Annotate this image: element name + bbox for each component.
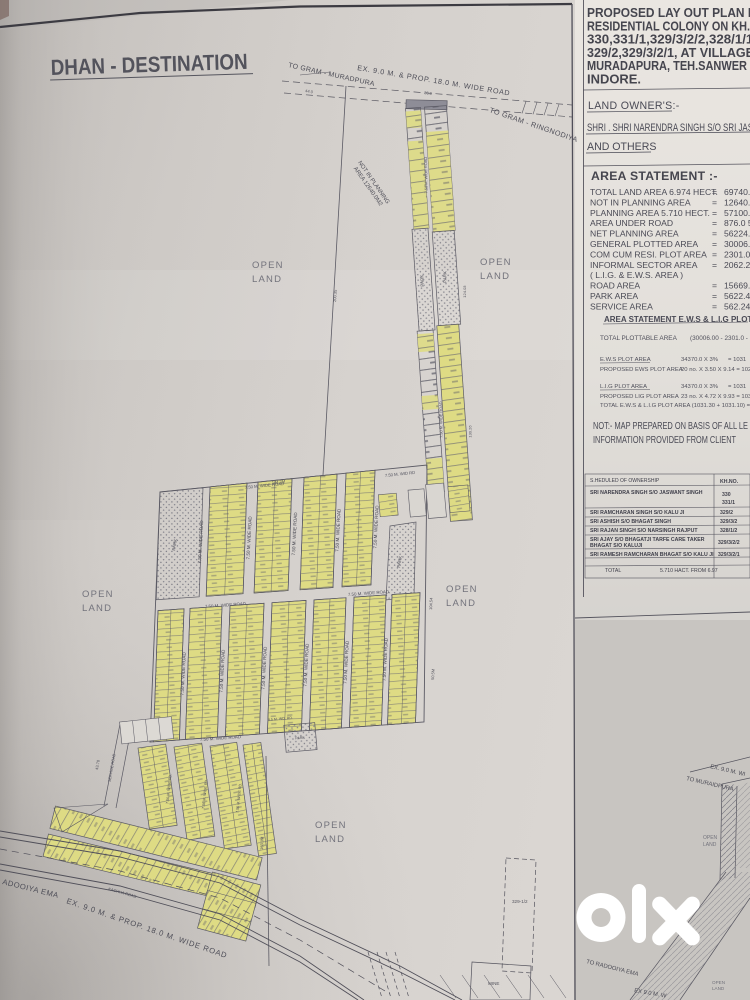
svg-text:=: = xyxy=(712,260,717,270)
svg-text:=: = xyxy=(712,187,717,197)
svg-text:S.HEDULED OF OWNERSHIP: S.HEDULED OF OWNERSHIP xyxy=(590,478,660,484)
svg-text:=: = xyxy=(712,249,717,259)
svg-text:57100.: 57100. xyxy=(724,208,750,218)
svg-text:34370.0 X 3%: 34370.0 X 3% xyxy=(681,357,719,363)
svg-text:NOT IN PLANNING AREA: NOT IN PLANNING AREA xyxy=(590,197,691,207)
svg-text:PARK AREA: PARK AREA xyxy=(590,291,638,301)
svg-text:329-1/2: 329-1/2 xyxy=(512,899,528,904)
svg-text:TOTAL PLOTTABLE AREA: TOTAL PLOTTABLE AREA xyxy=(600,335,678,342)
svg-text:L.I.G PLOT AREA: L.I.G PLOT AREA xyxy=(600,384,647,390)
svg-text:INDORE.: INDORE. xyxy=(587,72,641,87)
svg-text:(30006.00 - 2301.0 - 2062.20 ): (30006.00 - 2301.0 - 2062.20 ) = 143 xyxy=(690,335,750,342)
svg-text:329/3/2/1: 329/3/2/1 xyxy=(718,552,740,558)
svg-text:=: = xyxy=(712,197,717,207)
svg-text:TOTAL LAND AREA 6.974 HECT.: TOTAL LAND AREA 6.974 HECT. xyxy=(590,187,718,197)
svg-text:=: = xyxy=(712,291,717,301)
svg-text:328/1/2: 328/1/2 xyxy=(720,528,737,534)
svg-text:562.24: 562.24 xyxy=(724,301,750,311)
svg-text:INFORMAL SECTOR AREA: INFORMAL SECTOR AREA xyxy=(590,260,698,270)
svg-text:PLANNING AREA 5.710 HECT.: PLANNING AREA 5.710 HECT. xyxy=(590,208,710,218)
svg-text:=: = xyxy=(712,281,717,291)
svg-text:PROPOSED LIG PLOT AREA: PROPOSED LIG PLOT AREA xyxy=(600,394,679,400)
svg-text:TOTAL: TOTAL xyxy=(605,568,621,574)
svg-text:SRI RAMCHARAN SINGH S/O KALU J: SRI RAMCHARAN SINGH S/O KALU JI xyxy=(590,510,685,516)
svg-text:7.50 M. WIDE ROAD: 7.50 M. WIDE ROAD xyxy=(423,157,429,194)
svg-text:5622.4: 5622.4 xyxy=(724,291,750,301)
svg-text:2301.0: 2301.0 xyxy=(724,249,750,259)
svg-text:LAND: LAND xyxy=(252,274,282,285)
svg-text:SERVICE AREA: SERVICE AREA xyxy=(590,301,653,311)
svg-text:OPEN: OPEN xyxy=(712,980,725,985)
svg-text:15669.: 15669. xyxy=(724,281,750,291)
svg-text:2062.2: 2062.2 xyxy=(724,260,750,270)
svg-text:TOTAL E.W.S & L.I.G PLOT AREA: TOTAL E.W.S & L.I.G PLOT AREA (1031.30 +… xyxy=(600,403,750,409)
svg-text:12640.: 12640. xyxy=(724,197,750,207)
svg-text:LAND: LAND xyxy=(446,598,476,609)
svg-text:23 no. X 4.72 X 9.93 = 1031: 23 no. X 4.72 X 9.93 = 1031 xyxy=(681,394,750,400)
svg-text:5.710 HACT. FROM 6.97: 5.710 HACT. FROM 6.97 xyxy=(660,568,718,574)
svg-text:PARK: PARK xyxy=(419,275,424,287)
svg-text:34370.0 X 3%: 34370.0 X 3% xyxy=(681,384,719,390)
svg-text:=: = xyxy=(712,208,717,218)
svg-text:=: = xyxy=(712,218,717,228)
svg-text:163.0M: 163.0M xyxy=(259,837,264,851)
svg-text:AREA STATEMENT E.W.S & L.I.G P: AREA STATEMENT E.W.S & L.I.G PLOTS xyxy=(604,315,750,324)
svg-text:OPEN: OPEN xyxy=(703,835,718,841)
svg-text:LAND: LAND xyxy=(712,986,725,991)
svg-text:OPEN: OPEN xyxy=(252,260,284,271)
svg-text:LAND: LAND xyxy=(480,271,510,282)
svg-text:=: = xyxy=(712,301,717,311)
svg-text:130.26: 130.26 xyxy=(468,425,473,438)
svg-text:SRI RAJAN SINGH S/O NARSINGH: SRI RAJAN SINGH S/O NARSINGH RAJPUT xyxy=(590,528,698,534)
svg-text:AREA UNDER ROAD: AREA UNDER ROAD xyxy=(590,218,673,228)
svg-text:NOT:- MAP PREPARED ON BASIS OF: NOT:- MAP PREPARED ON BASIS OF ALL LE xyxy=(593,421,748,432)
svg-text:= 1031: = 1031 xyxy=(728,357,746,363)
svg-text:LAND OWNER'S:-: LAND OWNER'S:- xyxy=(588,100,680,112)
svg-text:MINE: MINE xyxy=(488,981,499,986)
svg-text:AREA STATEMENT :-: AREA STATEMENT :- xyxy=(591,169,718,183)
svg-text:329/3/2/2: 329/3/2/2 xyxy=(718,540,740,546)
svg-text:LAND: LAND xyxy=(703,842,717,848)
svg-text:OPEN: OPEN xyxy=(446,584,478,595)
svg-text:PROPOSED EWS PLOT AREA: PROPOSED EWS PLOT AREA xyxy=(600,367,683,373)
svg-text:OPEN: OPEN xyxy=(82,589,114,600)
svg-text:PARK: PARK xyxy=(442,271,447,283)
svg-text:LAND: LAND xyxy=(82,603,112,614)
svg-text:=: = xyxy=(712,229,717,239)
svg-text:SRI ASHISH S/O BHAGAT SINGH: SRI ASHISH S/O BHAGAT SINGH xyxy=(590,519,671,525)
svg-text:124.03: 124.03 xyxy=(462,285,467,298)
svg-text:329/2: 329/2 xyxy=(720,510,733,516)
svg-text:BHAGAT S/O KALUJI: BHAGAT S/O KALUJI xyxy=(590,543,643,549)
svg-text:LAND: LAND xyxy=(315,834,345,845)
svg-text:876.0 5: 876.0 5 xyxy=(724,218,750,228)
svg-text:56224.: 56224. xyxy=(724,229,750,239)
svg-text:AND OTHERS: AND OTHERS xyxy=(587,141,656,153)
svg-text:50.5M: 50.5M xyxy=(430,669,436,680)
svg-text:OPEN: OPEN xyxy=(315,820,347,831)
svg-text:= 1031: = 1031 xyxy=(728,384,746,390)
svg-text:7.50 M. WIDE ROAD: 7.50 M. WIDE ROAD xyxy=(438,401,444,438)
svg-text:69740.: 69740. xyxy=(724,187,750,197)
svg-text:20 no. X 3.50 X 9.14 = 1021: 20 no. X 3.50 X 9.14 = 1021 xyxy=(681,367,750,373)
svg-text:SRI NARENDRA SINGH S/O JASWANT: SRI NARENDRA SINGH S/O JASWANT SINGH xyxy=(590,490,703,496)
svg-text:GENERAL PLOTTED AREA: GENERAL PLOTTED AREA xyxy=(590,239,698,249)
svg-text:ROAD AREA: ROAD AREA xyxy=(590,281,640,291)
svg-text:KH.NO.: KH.NO. xyxy=(720,479,739,485)
svg-text:NET PLANNING AREA: NET PLANNING AREA xyxy=(590,229,679,239)
svg-text:E.W.S PLOT AREA: E.W.S PLOT AREA xyxy=(600,357,651,363)
svg-text:330: 330 xyxy=(722,492,731,498)
svg-text:COM CUM RESI. PLOT AREA: COM CUM RESI. PLOT AREA xyxy=(590,249,707,259)
svg-text:OPEN: OPEN xyxy=(480,257,512,268)
svg-text:200.35: 200.35 xyxy=(332,289,338,302)
svg-text:=: = xyxy=(712,239,717,249)
svg-text:SRI RAMESH RAMCHARAN BHAGAT S/: SRI RAMESH RAMCHARAN BHAGAT S/O KALU JI xyxy=(590,552,714,558)
svg-text:331/1: 331/1 xyxy=(722,500,735,506)
svg-text:30006.: 30006. xyxy=(724,239,750,249)
svg-text:329/3/2: 329/3/2 xyxy=(720,519,737,525)
svg-text:INFORMATION PROVIDED FROM CLIE: INFORMATION PROVIDED FROM CLIENT xyxy=(593,435,736,446)
svg-text:104.54: 104.54 xyxy=(428,597,434,610)
svg-text:( L.I.G. & E.W.S. AREA ): ( L.I.G. & E.W.S. AREA ) xyxy=(590,270,683,280)
